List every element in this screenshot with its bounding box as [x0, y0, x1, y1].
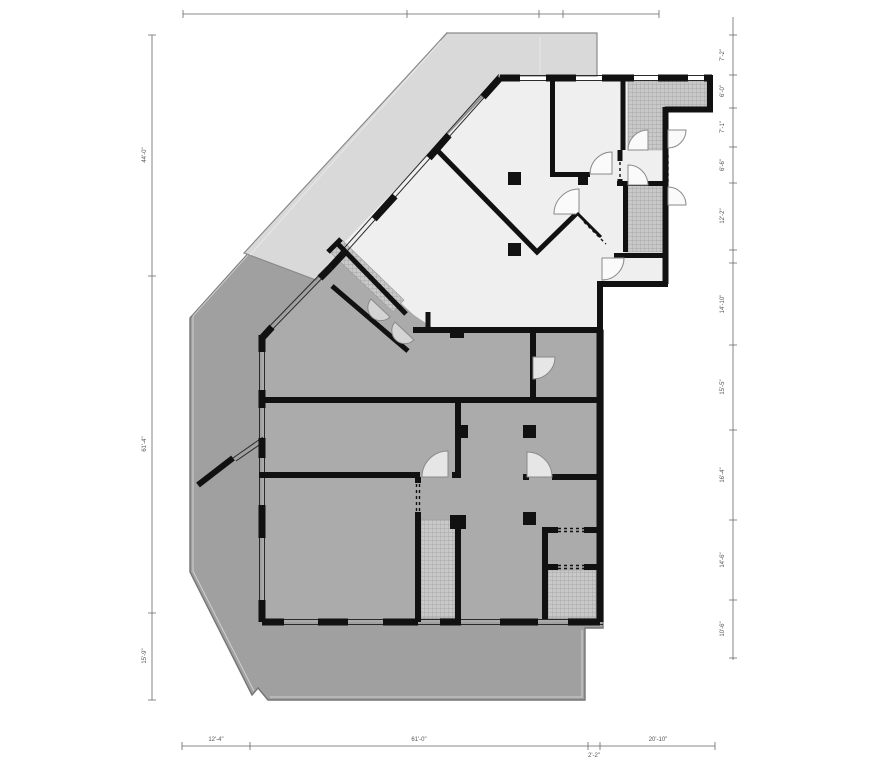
stair-hatch-bottom-center	[421, 520, 455, 618]
dim-label-right-1: 7'-2"	[720, 49, 726, 61]
dimension-line-top	[183, 10, 659, 18]
dim-label-bottom-2: 61'-0"	[411, 737, 426, 743]
floor-plan-svg: 7'-2" 6'-0" 7'-1" 6'-6" 12'-2" 14'-10" 1…	[0, 0, 875, 768]
dim-label-right-8: 16'-4"	[720, 467, 726, 482]
wall-step-right	[597, 284, 668, 332]
column-room-1	[455, 425, 468, 438]
dimension-line-right	[729, 17, 737, 660]
dim-label-left-1: 44'-0"	[142, 147, 148, 162]
column-wall-notch	[450, 327, 464, 338]
column-room-3	[523, 512, 536, 525]
dim-label-right-6: 14'-10"	[720, 295, 726, 314]
stair-hatch-bottom-right	[548, 570, 596, 618]
dim-label-left-3: 15'-9"	[142, 648, 148, 663]
column-room-2	[523, 425, 536, 438]
door-arc-exterior-1	[668, 130, 686, 148]
dimension-line-left	[148, 35, 156, 700]
dim-label-bottom-3: 2'-2"	[588, 753, 600, 759]
dim-label-right-2: 6'-0"	[720, 85, 726, 97]
column-jamb-lower	[450, 515, 466, 529]
dim-label-bottom-4: 20'-10"	[649, 737, 668, 743]
dim-label-left-2: 61'-4"	[142, 436, 148, 451]
stair-hatch-mid-right	[625, 185, 665, 252]
dim-label-bottom-1: 12'-4"	[208, 737, 223, 743]
dim-label-right-3: 7'-1"	[720, 121, 726, 133]
column-jamb-upper	[578, 172, 588, 185]
dim-label-right-4: 6'-6"	[720, 159, 726, 171]
dim-label-right-7: 15'-5"	[720, 379, 726, 394]
dimension-line-bottom	[182, 742, 715, 750]
door-arc-exterior-2	[668, 187, 686, 205]
column-hall-2	[508, 243, 521, 256]
floor-plan-canvas: 7'-2" 6'-0" 7'-1" 6'-6" 12'-2" 14'-10" 1…	[0, 0, 875, 768]
dim-label-right-5: 12'-2"	[720, 208, 726, 223]
dim-label-right-10: 10'-6"	[720, 621, 726, 636]
column-hall-1	[508, 172, 521, 185]
dim-label-right-9: 14'-6"	[720, 552, 726, 567]
